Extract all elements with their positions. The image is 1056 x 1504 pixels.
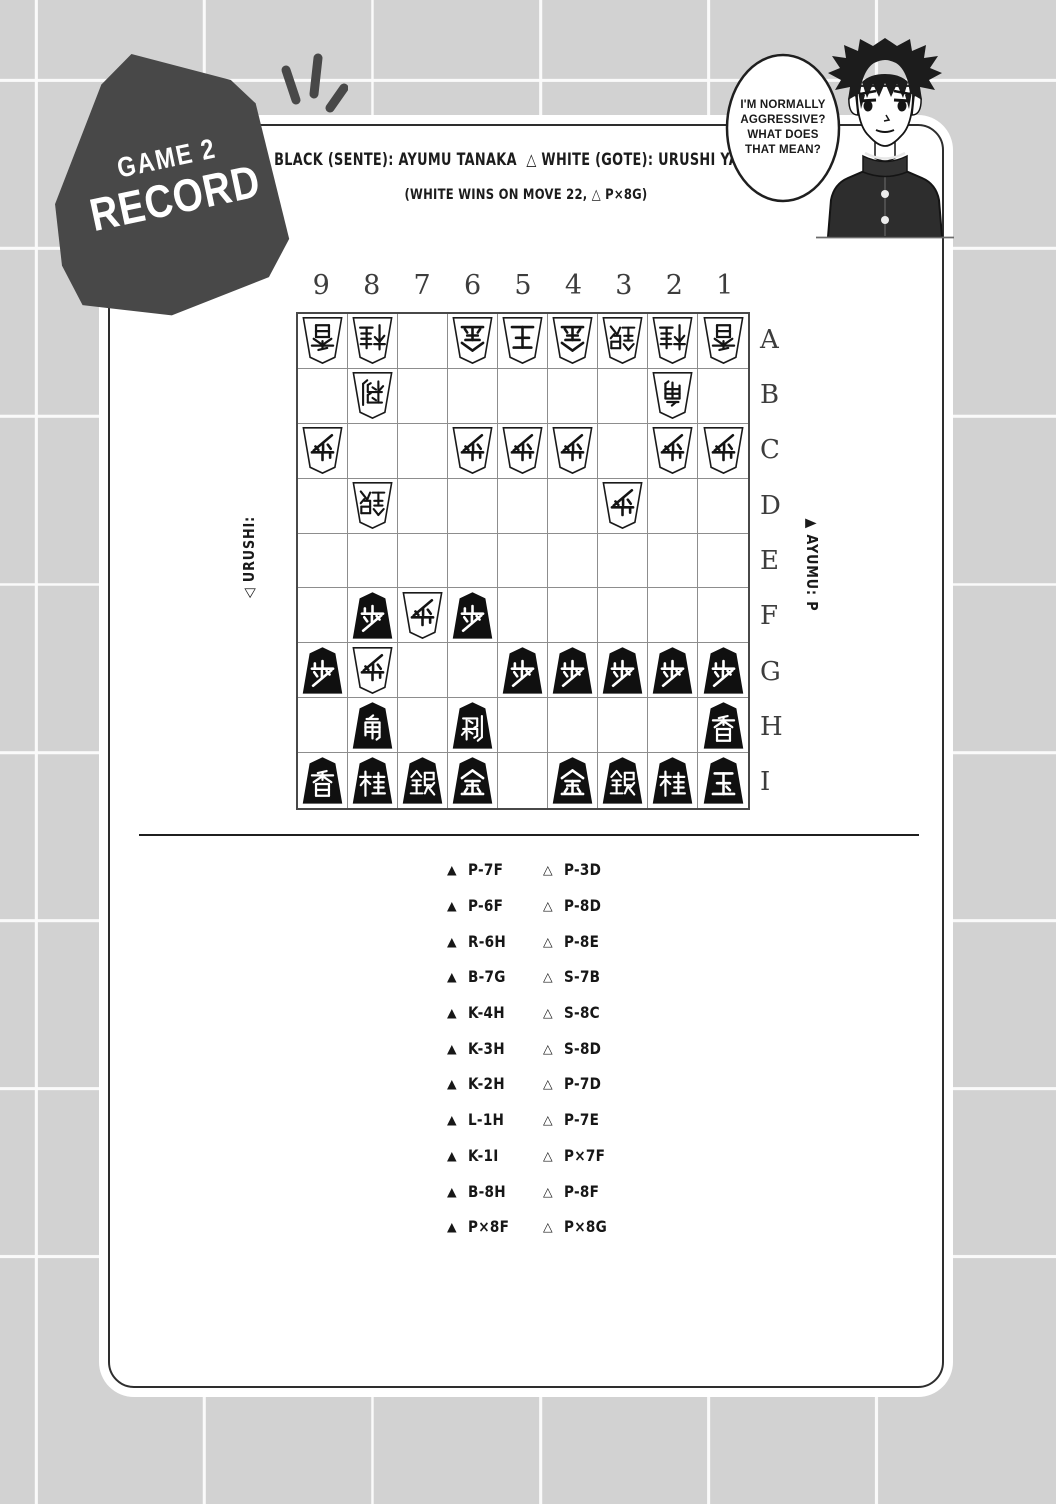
black-move: L-1H [468, 1110, 532, 1129]
shogi-piece-pawn-gote [651, 427, 694, 474]
board-cell-6A [448, 314, 498, 369]
board-cell-1H [698, 698, 748, 753]
shogi-piece-pawn-gote [601, 482, 644, 529]
move-list: ▲P-7F△P-3D▲P-6F△P-8D▲R-6H△P-8E▲B-7G△S-7B… [447, 852, 615, 1245]
game-record-badge: GAME 2 RECORD [52, 50, 292, 318]
white-triangle-icon: △ [543, 1041, 564, 1056]
row-label-F: F [760, 601, 783, 631]
white-move: S-8D [564, 1039, 601, 1058]
column-label-6: 6 [447, 270, 497, 301]
shogi-piece-pawn-sente [501, 647, 544, 694]
board-cell-8H [348, 698, 398, 753]
speech-bubble: I'M NORMALLY AGGRESSIVE? WHAT DOES THAT … [724, 52, 842, 204]
white-move: S-7B [564, 967, 600, 986]
shogi-piece-silver-gote [601, 317, 644, 364]
board-cell-6H [448, 698, 498, 753]
board-cell-8A [348, 314, 398, 369]
board-row-labels: ABCDEFGHI [760, 312, 783, 810]
move-row-11: ▲P×8F△P×8G [447, 1209, 615, 1245]
white-move: P-7D [564, 1074, 601, 1093]
column-label-2: 2 [649, 270, 699, 301]
board-cell-4I [548, 753, 598, 808]
board-cell-4B [548, 369, 598, 424]
board-cell-3F [598, 588, 648, 643]
board-cell-9E [298, 534, 348, 589]
black-move: P-7F [468, 860, 532, 879]
board-cell-9C [298, 424, 348, 479]
column-label-1: 1 [700, 270, 750, 301]
move-row-5: ▲K-4H△S-8C [447, 995, 615, 1031]
white-triangle-icon: △ [543, 1076, 564, 1091]
shogi-piece-lance-sente [301, 757, 344, 804]
board-cell-4A [548, 314, 598, 369]
manga-page-background: GAME 2 RECORD ▲ BLACK (SENTE): AYUMU TAN… [0, 0, 1056, 1504]
board-cell-3E [598, 534, 648, 589]
board-cell-9I [298, 753, 348, 808]
black-move: B-7G [468, 967, 532, 986]
board-cell-8E [348, 534, 398, 589]
shogi-piece-pawn-sente [601, 647, 644, 694]
board-cell-5G [498, 643, 548, 698]
board-cell-3C [598, 424, 648, 479]
board-cell-7C [398, 424, 448, 479]
board-cell-3A [598, 314, 648, 369]
board-cell-2A [648, 314, 698, 369]
board-cell-7I [398, 753, 448, 808]
black-move: K-2H [468, 1074, 532, 1093]
black-move: R-6H [468, 932, 532, 951]
board-cell-1C [698, 424, 748, 479]
board-cell-7B [398, 369, 448, 424]
shogi-piece-king-gote [501, 317, 544, 364]
board-cell-3G [598, 643, 648, 698]
white-move: P×8G [564, 1217, 607, 1236]
black-move: P-6F [468, 896, 532, 915]
column-label-4: 4 [548, 270, 598, 301]
shogi-piece-pawn-sente [551, 647, 594, 694]
board-cell-8D [348, 479, 398, 534]
white-triangle-icon: △ [543, 1184, 564, 1199]
board-cell-3B [598, 369, 648, 424]
board-cell-8G [348, 643, 398, 698]
right-eye [898, 101, 907, 112]
shogi-piece-lance-gote [702, 317, 745, 364]
board-cell-4G [548, 643, 598, 698]
move-row-2: ▲P-6F△P-8D [447, 888, 615, 924]
shogi-piece-pawn-gote [351, 647, 394, 694]
shogi-piece-knight-gote [651, 317, 694, 364]
white-move: P-8D [564, 896, 601, 915]
board-cell-5F [498, 588, 548, 643]
black-move: K-4H [468, 1003, 532, 1022]
divider-line [139, 834, 919, 836]
black-triangle-icon: ▲ [447, 1148, 468, 1163]
board-cell-5A [498, 314, 548, 369]
shogi-piece-pawn-gote [401, 592, 444, 639]
black-triangle-icon: ▲ [447, 1041, 468, 1056]
row-label-H: H [760, 712, 783, 742]
row-label-E: E [760, 546, 783, 576]
board-cell-9H [298, 698, 348, 753]
shogi-piece-gold-gote [451, 317, 494, 364]
board-cell-1I [698, 753, 748, 808]
black-move: K-3H [468, 1039, 532, 1058]
shogi-piece-silver-gote [351, 482, 394, 529]
row-label-A: A [760, 325, 783, 355]
row-label-G: G [760, 657, 783, 687]
move-row-3: ▲R-6H△P-8E [447, 923, 615, 959]
board-cell-5B [498, 369, 548, 424]
board-cell-1A [698, 314, 748, 369]
shogi-piece-gold-gote [551, 317, 594, 364]
board-cell-7F [398, 588, 448, 643]
board-cell-4E [548, 534, 598, 589]
board-cell-2E [648, 534, 698, 589]
shogi-piece-pawn-gote [451, 427, 494, 474]
white-triangle-icon: △ [543, 1005, 564, 1020]
board-cell-2B [648, 369, 698, 424]
row-label-B: B [760, 380, 783, 410]
shogi-piece-rook-gote [351, 372, 394, 419]
board-cell-6B [448, 369, 498, 424]
white-triangle-icon: △ [543, 1112, 564, 1127]
board-cell-7A [398, 314, 448, 369]
move-row-9: ▲K-1I△P×7F [447, 1138, 615, 1174]
shogi-board [296, 312, 750, 810]
board-cell-6G [448, 643, 498, 698]
board-cell-6I [448, 753, 498, 808]
board-cell-3H [598, 698, 648, 753]
board-cell-2F [648, 588, 698, 643]
white-triangle-icon: △ [543, 969, 564, 984]
black-move: K-1I [468, 1146, 532, 1165]
board-cell-5E [498, 534, 548, 589]
shogi-piece-knight-gote [351, 317, 394, 364]
board-cell-4H [548, 698, 598, 753]
column-label-5: 5 [498, 270, 548, 301]
shogi-piece-pawn-sente [651, 647, 694, 694]
black-triangle-icon: ▲ [447, 1184, 468, 1199]
board-cell-2C [648, 424, 698, 479]
move-row-7: ▲K-2H△P-7D [447, 1066, 615, 1102]
white-triangle-icon: △ [543, 862, 564, 877]
shogi-piece-lance-sente [702, 702, 745, 749]
row-label-D: D [760, 491, 783, 521]
board-cell-7H [398, 698, 448, 753]
move-row-8: ▲L-1H△P-7E [447, 1102, 615, 1138]
black-move: B-8H [468, 1182, 532, 1201]
white-move: P-8F [564, 1182, 599, 1201]
shogi-piece-bishop-gote [651, 372, 694, 419]
shogi-piece-pawn-gote [702, 427, 745, 474]
board-cell-2H [648, 698, 698, 753]
board-cell-5I [498, 753, 548, 808]
board-cell-2I [648, 753, 698, 808]
black-triangle-icon: ▲ [447, 1005, 468, 1020]
column-label-3: 3 [599, 270, 649, 301]
row-label-C: C [760, 435, 783, 465]
column-label-7: 7 [397, 270, 447, 301]
shogi-piece-knight-sente [351, 757, 394, 804]
column-label-8: 8 [346, 270, 396, 301]
board-cell-5C [498, 424, 548, 479]
shogi-piece-knight-sente [651, 757, 694, 804]
board-cell-6D [448, 479, 498, 534]
move-row-1: ▲P-7F△P-3D [447, 852, 615, 888]
white-move: P×7F [564, 1146, 605, 1165]
shogi-piece-pawn-sente [702, 647, 745, 694]
board-cell-9D [298, 479, 348, 534]
board-cell-1F [698, 588, 748, 643]
board-cell-1D [698, 479, 748, 534]
shogi-piece-silver-sente [401, 757, 444, 804]
board-cell-4D [548, 479, 598, 534]
column-label-9: 9 [296, 270, 346, 301]
board-column-labels: 987654321 [296, 270, 750, 301]
white-triangle-icon: △ [543, 934, 564, 949]
shogi-piece-rook-sente [451, 702, 494, 749]
shogi-piece-silver-sente [601, 757, 644, 804]
board-cell-1E [698, 534, 748, 589]
shogi-piece-pawn-gote [301, 427, 344, 474]
board-cell-6E [448, 534, 498, 589]
row-label-I: I [760, 767, 783, 797]
shogi-piece-pawn-gote [501, 427, 544, 474]
white-move: S-8C [564, 1003, 600, 1022]
board-cell-9A [298, 314, 348, 369]
white-triangle-icon: △ [543, 1219, 564, 1234]
shogi-piece-gold-sente [551, 757, 594, 804]
black-triangle-icon: ▲ [447, 1219, 468, 1234]
white-triangle-icon: △ [543, 1148, 564, 1163]
move-row-10: ▲B-8H△P-8F [447, 1173, 615, 1209]
board-cell-9G [298, 643, 348, 698]
board-cell-6C [448, 424, 498, 479]
black-triangle-icon: ▲ [447, 862, 468, 877]
white-triangle-icon: △ [543, 898, 564, 913]
black-triangle-icon: ▲ [447, 1076, 468, 1091]
board-cell-9B [298, 369, 348, 424]
urushi-hand-label: ◁ URUSHI: [240, 485, 258, 630]
face [857, 86, 913, 146]
shogi-piece-lance-gote [301, 317, 344, 364]
board-cell-6F [448, 588, 498, 643]
board-cell-8C [348, 424, 398, 479]
shogi-piece-pawn-sente [451, 592, 494, 639]
board-cell-4F [548, 588, 598, 643]
black-triangle-icon: ▲ [447, 898, 468, 913]
board-cell-1B [698, 369, 748, 424]
board-cell-8F [348, 588, 398, 643]
white-move: P-7E [564, 1110, 599, 1129]
white-move: P-8E [564, 932, 599, 951]
move-row-6: ▲K-3H△S-8D [447, 1030, 615, 1066]
black-triangle-icon: ▲ [447, 969, 468, 984]
board-cell-8I [348, 753, 398, 808]
board-cell-3D [598, 479, 648, 534]
board-cell-5D [498, 479, 548, 534]
board-cell-1G [698, 643, 748, 698]
ayumu-hand-label: ▲ AYUMU: P [803, 493, 821, 638]
board-cell-3I [598, 753, 648, 808]
board-cell-9F [298, 588, 348, 643]
shogi-piece-pawn-sente [351, 592, 394, 639]
black-triangle-icon: ▲ [447, 1112, 468, 1127]
move-row-4: ▲B-7G△S-7B [447, 959, 615, 995]
board-cell-2G [648, 643, 698, 698]
board-cell-8B [348, 369, 398, 424]
board-cell-2D [648, 479, 698, 534]
shogi-piece-gold-sente [451, 757, 494, 804]
black-move: P×8F [468, 1217, 532, 1236]
shogi-piece-king-sente [702, 757, 745, 804]
black-triangle-icon: ▲ [447, 934, 468, 949]
emphasis-sparks-icon [238, 34, 348, 114]
board-cell-7G [398, 643, 448, 698]
board-cell-4C [548, 424, 598, 479]
shogi-piece-pawn-sente [301, 647, 344, 694]
board-cell-7D [398, 479, 448, 534]
white-move: P-3D [564, 860, 601, 879]
speech-bubble-text: I'M NORMALLY AGGRESSIVE? WHAT DOES THAT … [736, 66, 830, 190]
left-eye [864, 101, 873, 112]
shogi-piece-pawn-gote [551, 427, 594, 474]
board-cell-5H [498, 698, 548, 753]
shogi-piece-bishop-sente [351, 702, 394, 749]
board-cell-7E [398, 534, 448, 589]
